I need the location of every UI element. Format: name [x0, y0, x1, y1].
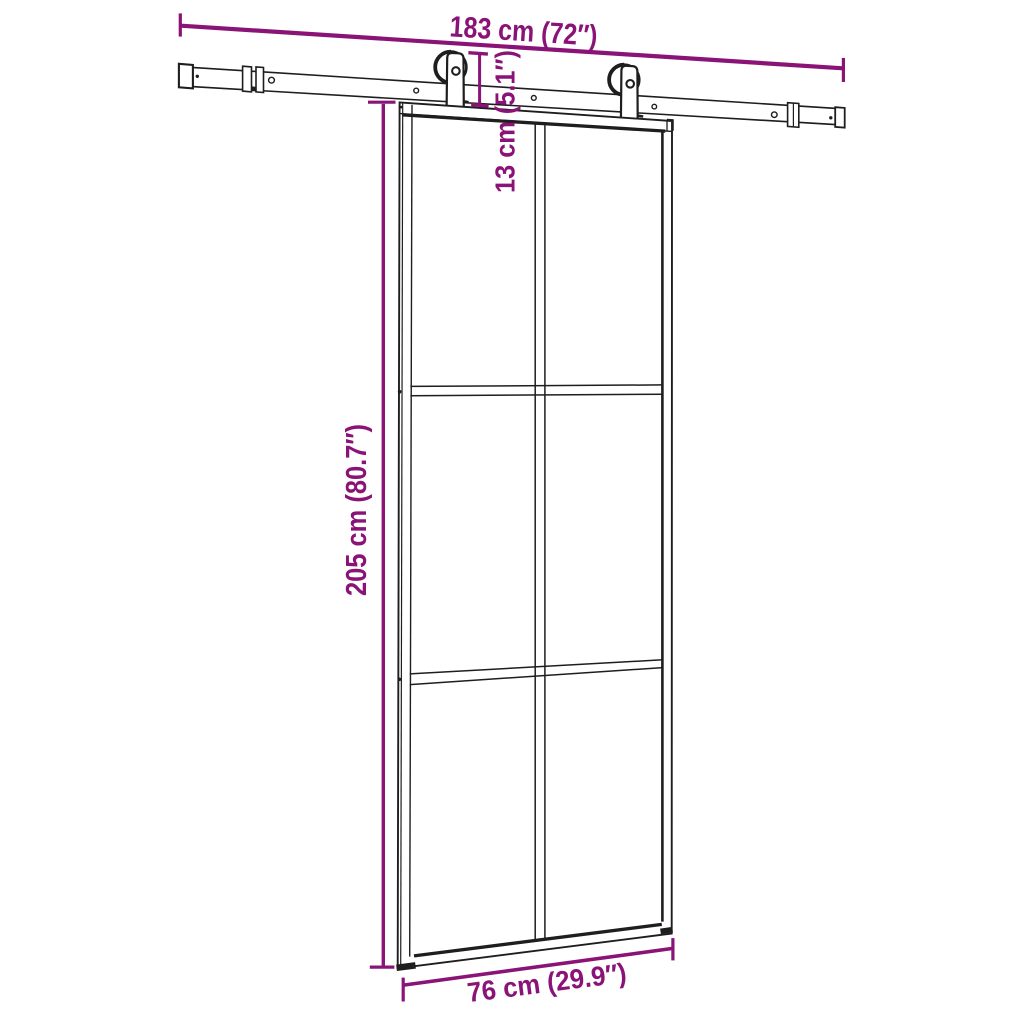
svg-text:205 cm (80.7″): 205 cm (80.7″)	[341, 424, 373, 596]
svg-text:13 cm (5.1″): 13 cm (5.1″)	[490, 50, 521, 193]
